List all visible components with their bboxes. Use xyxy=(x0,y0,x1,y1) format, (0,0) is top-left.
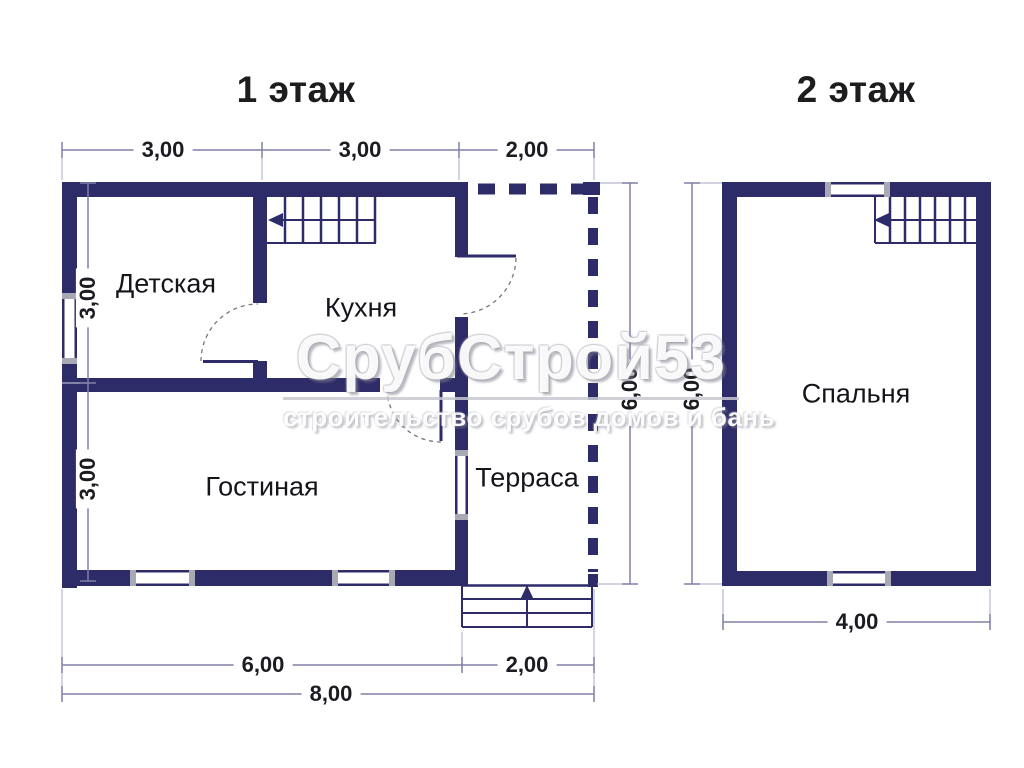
dim-bottom-terrace: 2,00 xyxy=(498,653,557,677)
floor1-door-arcs xyxy=(201,258,516,442)
floor2-stairs xyxy=(874,197,976,243)
floor1-walls xyxy=(62,182,468,588)
floor1-stairs xyxy=(267,197,376,243)
dim-top-1: 3,00 xyxy=(134,138,193,162)
room-label-living: Гостиная xyxy=(205,472,318,503)
floor2-stairs-arrow-icon xyxy=(874,213,889,227)
floor1-doors xyxy=(203,256,516,441)
floor1-terrace-outline xyxy=(461,182,600,587)
floor1-window-terrace xyxy=(455,450,468,520)
room-label-kitchen: Кухня xyxy=(325,293,397,324)
floor2-window-top xyxy=(825,182,890,197)
floor2-title: 2 этаж xyxy=(797,69,916,111)
room-label-terrace: Терраса xyxy=(475,463,579,494)
floor1-window-bottom-2 xyxy=(332,570,395,586)
dim-bottom-total: 8,00 xyxy=(302,682,361,706)
floor-plan-page: 1 этаж 2 этаж Детская Кухня Гостиная Тер… xyxy=(0,0,1024,768)
dim-bottom-house: 6,00 xyxy=(234,653,293,677)
dim-left-floor2: 6,00 xyxy=(680,360,704,419)
dim-top-3: 2,00 xyxy=(498,138,557,162)
dim-bottom-floor2: 4,00 xyxy=(828,610,887,634)
floor1-window-bottom-1 xyxy=(130,570,195,586)
dim-top-2: 3,00 xyxy=(331,138,390,162)
room-label-bedroom: Спальня xyxy=(802,379,911,410)
floor1-entry-steps xyxy=(462,585,592,627)
floor2-window-bottom xyxy=(827,571,891,586)
room-label-nursery: Детская xyxy=(116,269,216,300)
floor1-title: 1 этаж xyxy=(237,69,356,111)
floor1-stairs-arrow-icon xyxy=(268,213,283,227)
entry-arrow-icon xyxy=(520,585,534,600)
dim-left-1: 3,00 xyxy=(76,269,100,328)
dim-right-floor1: 6,00 xyxy=(618,360,642,419)
dim-left-2: 3,00 xyxy=(76,450,100,509)
